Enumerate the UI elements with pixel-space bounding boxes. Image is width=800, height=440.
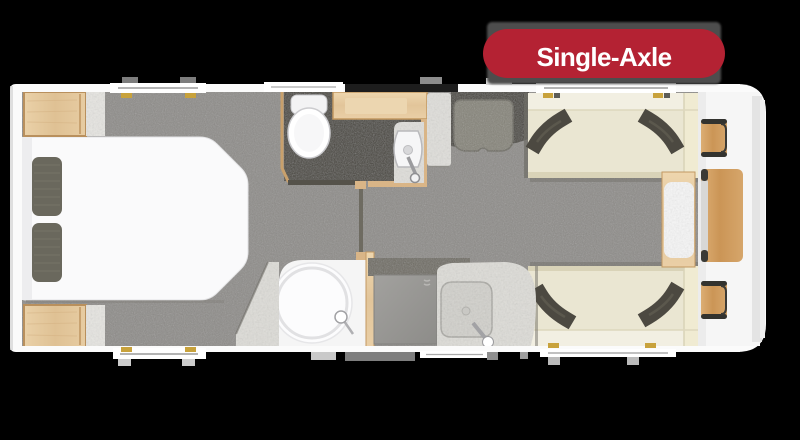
svg-text:Single-Axle: Single-Axle bbox=[537, 42, 672, 72]
